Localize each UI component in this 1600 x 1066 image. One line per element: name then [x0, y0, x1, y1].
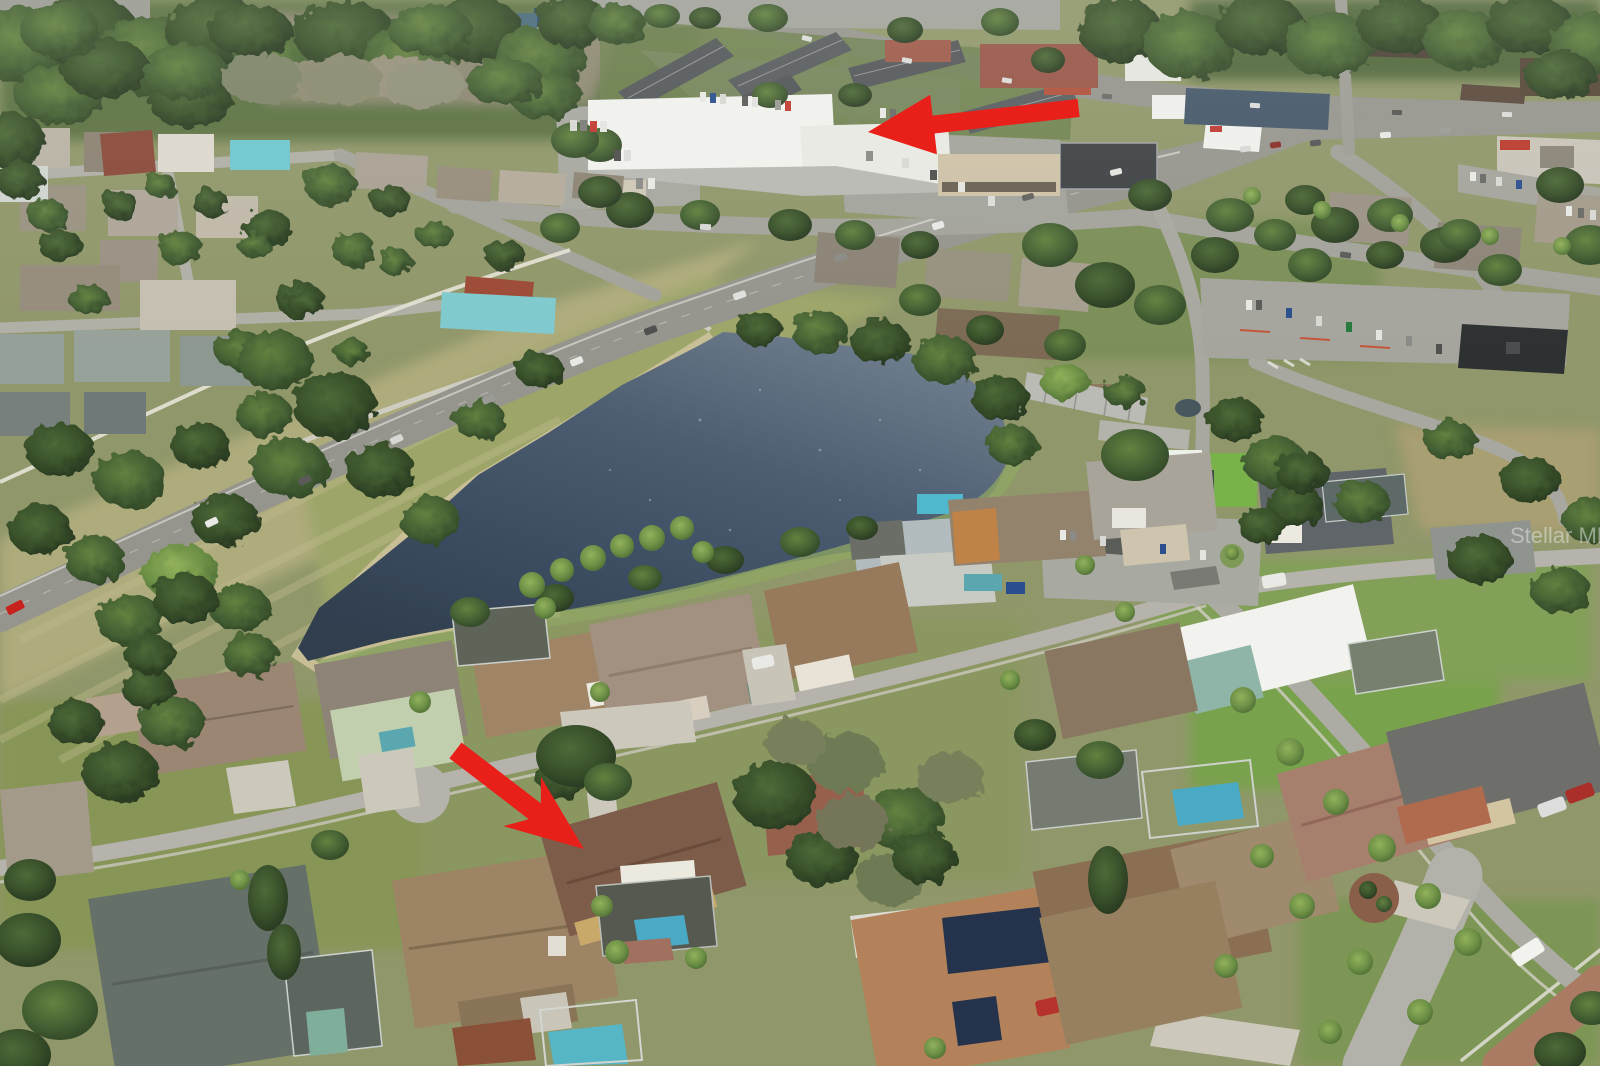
svg-text:Stellar MLS: Stellar MLS — [1510, 523, 1600, 548]
